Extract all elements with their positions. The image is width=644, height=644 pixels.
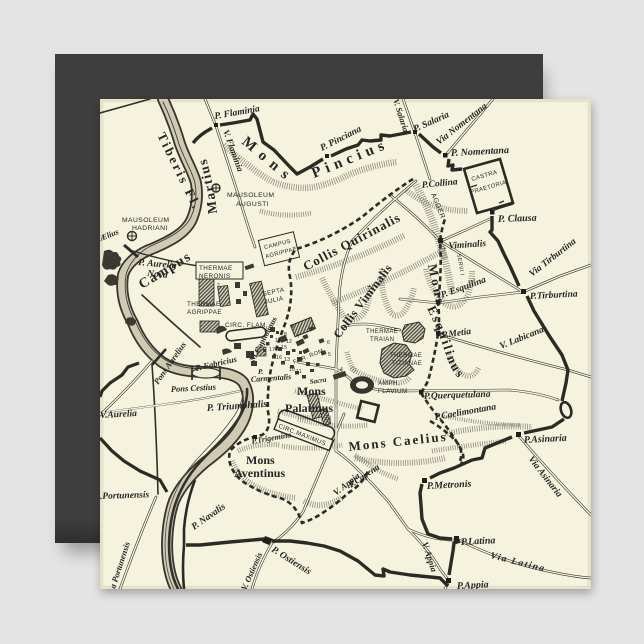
svg-text:Aventinus: Aventinus bbox=[234, 466, 285, 480]
svg-text:7: 7 bbox=[297, 334, 300, 340]
svg-text:13: 13 bbox=[284, 357, 290, 363]
svg-text:P.Appia: P.Appia bbox=[457, 579, 489, 589]
svg-text:P.Latina: P.Latina bbox=[461, 535, 496, 548]
svg-text:16: 16 bbox=[276, 355, 282, 361]
svg-text:10: 10 bbox=[289, 367, 295, 373]
svg-text:17: 17 bbox=[269, 347, 275, 353]
svg-text:.Portunensis: .Portunensis bbox=[100, 490, 150, 502]
svg-text:THERMAE: THERMAE bbox=[366, 329, 398, 335]
svg-text:AUGUSTI: AUGUSTI bbox=[236, 201, 269, 208]
svg-text:6: 6 bbox=[327, 340, 330, 346]
svg-text:THERMAE: THERMAE bbox=[199, 265, 233, 272]
svg-text:P. Clausa: P. Clausa bbox=[498, 213, 537, 225]
svg-text:2: 2 bbox=[217, 283, 220, 289]
svg-text:HADRIANI: HADRIANI bbox=[132, 225, 168, 232]
svg-text:V.Aurelia: V.Aurelia bbox=[100, 409, 137, 421]
svg-text:P.Metronis: P.Metronis bbox=[427, 479, 472, 492]
svg-text:15: 15 bbox=[281, 345, 287, 351]
svg-text:MAUSOLEUM: MAUSOLEUM bbox=[122, 217, 169, 224]
svg-text:FLAVIUM: FLAVIUM bbox=[378, 388, 408, 395]
svg-text:AMPH.: AMPH. bbox=[378, 380, 400, 387]
svg-text:Mons: Mons bbox=[246, 453, 275, 467]
svg-text:CIRC. FLAM.: CIRC. FLAM. bbox=[225, 322, 268, 329]
svg-text:12: 12 bbox=[286, 339, 292, 345]
svg-text:Mons: Mons bbox=[297, 384, 326, 398]
svg-text:NERONIS: NERONIS bbox=[199, 273, 231, 280]
svg-text:THERMAE: THERMAE bbox=[390, 353, 422, 359]
svg-text:MAUSOLEUM: MAUSOLEUM bbox=[227, 192, 274, 199]
svg-text:8: 8 bbox=[284, 332, 287, 338]
svg-text:9: 9 bbox=[291, 324, 294, 330]
svg-text:TITIANAE: TITIANAE bbox=[392, 361, 422, 367]
svg-text:11: 11 bbox=[296, 369, 302, 375]
svg-text:P.Asinaria: P.Asinaria bbox=[524, 433, 567, 446]
svg-text:14: 14 bbox=[275, 338, 281, 344]
svg-text:THERMAE: THERMAE bbox=[187, 301, 221, 308]
svg-text:4: 4 bbox=[340, 367, 343, 373]
svg-text:TRAIAN: TRAIAN bbox=[370, 337, 394, 343]
svg-text:AGRIPPAE: AGRIPPAE bbox=[187, 309, 222, 316]
svg-text:5: 5 bbox=[328, 352, 331, 358]
svg-text:P.: P. bbox=[258, 368, 263, 376]
